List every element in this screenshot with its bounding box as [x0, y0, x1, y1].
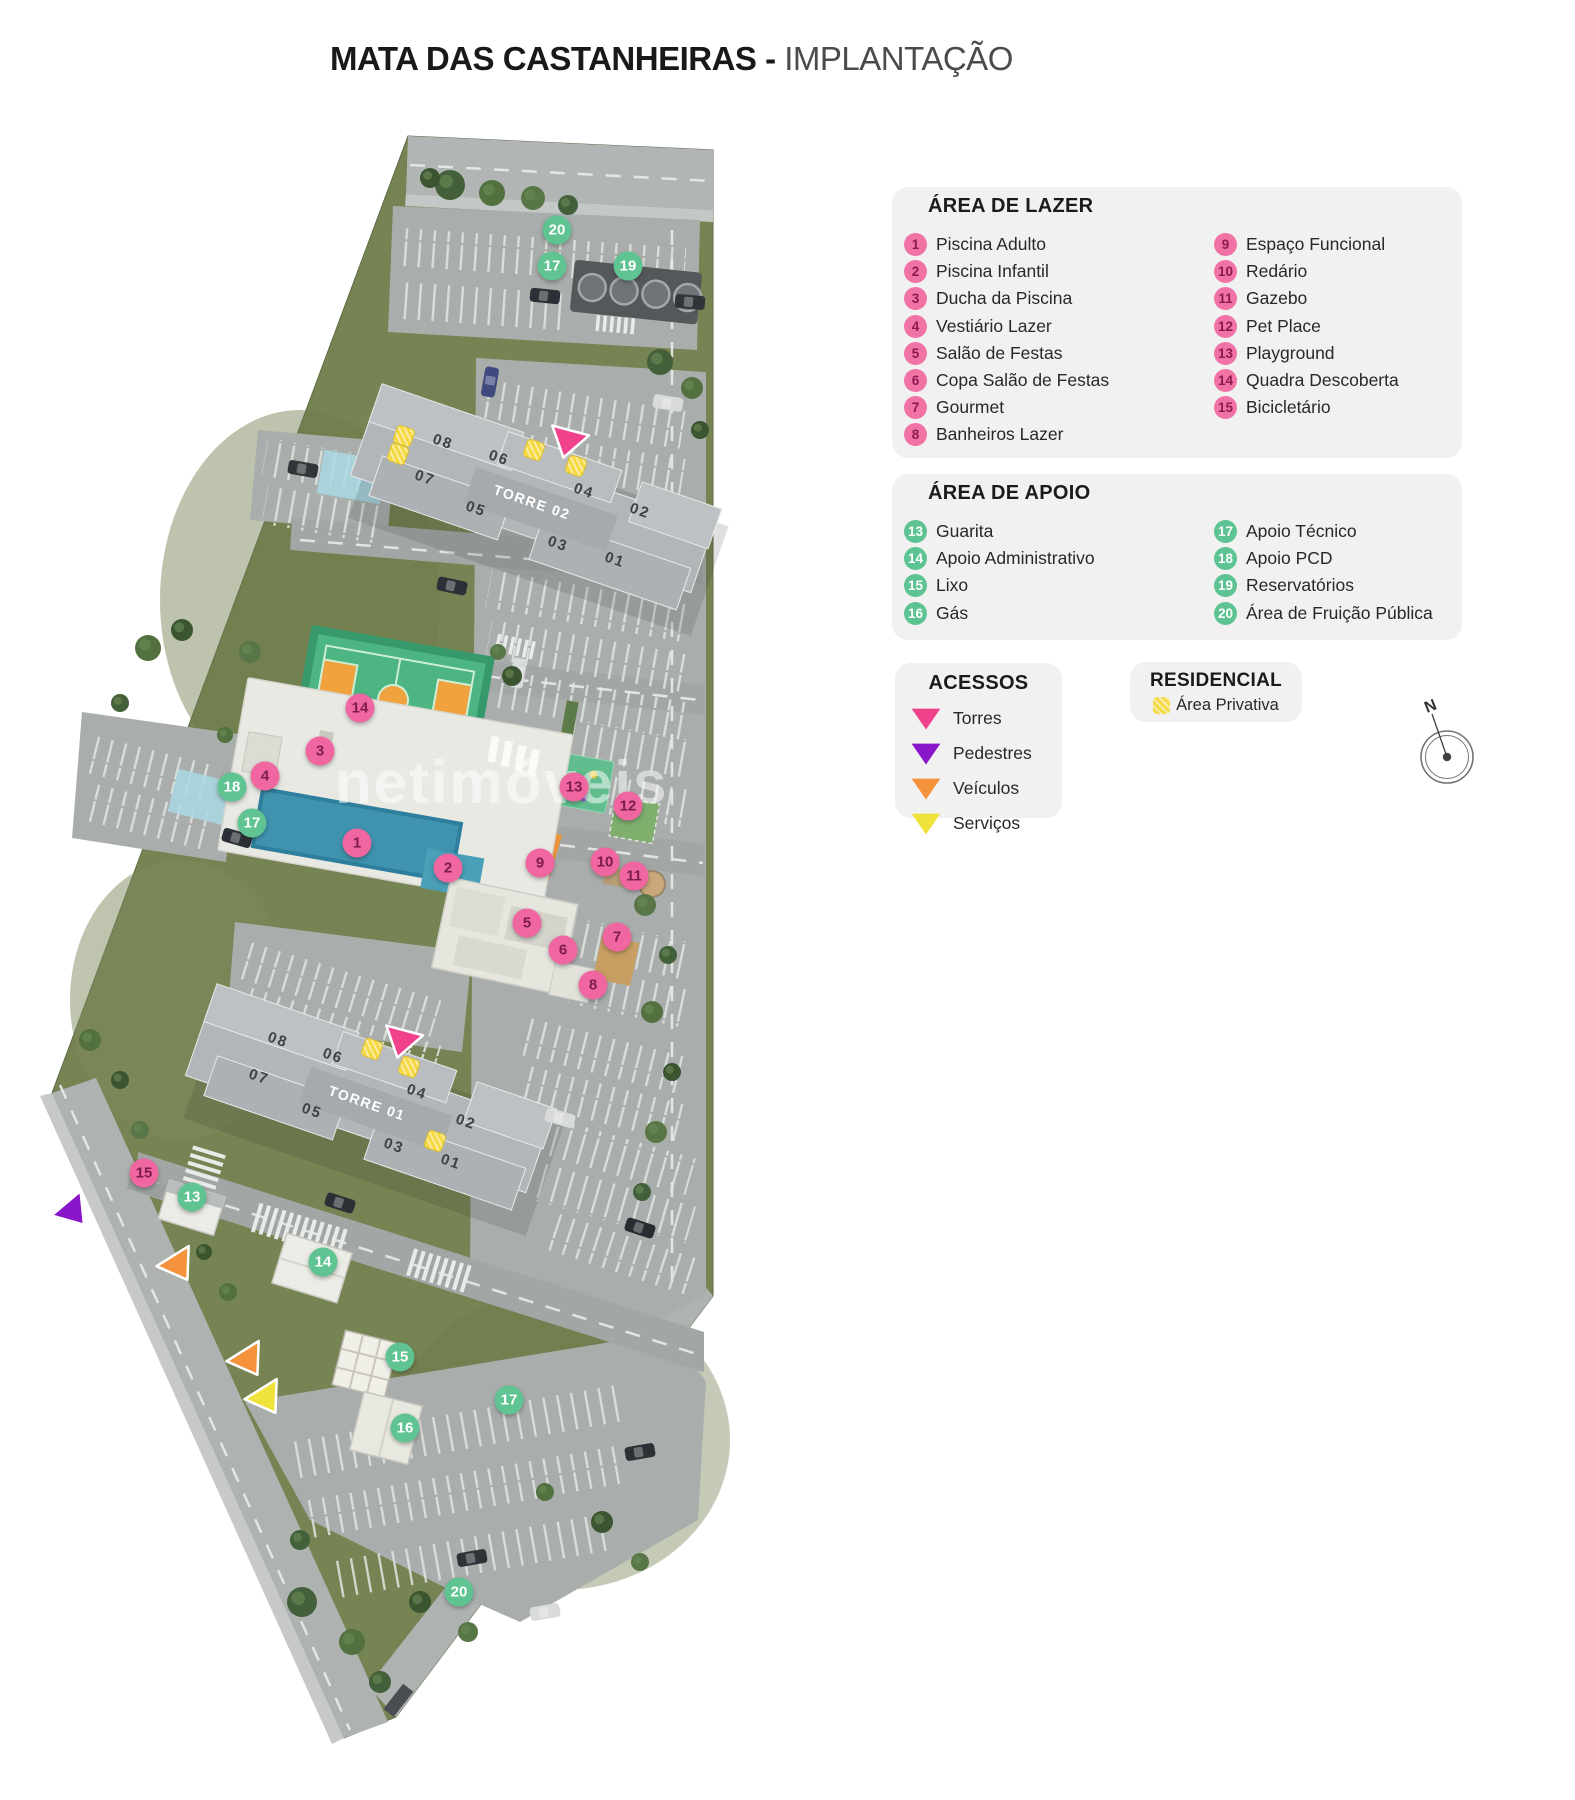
compass-north-label: N [1422, 697, 1439, 717]
legend-item-label: Copa Salão de Festas [936, 370, 1109, 391]
map-access-veiculos-triangle [150, 1240, 209, 1297]
legend-item: 12Pet Place [1214, 313, 1399, 340]
legend-item: 11Gazebo [1214, 285, 1399, 312]
map-marker-apoio-17: 17 [538, 252, 567, 281]
tower-unit-label: 04 [404, 1081, 429, 1104]
legend-item-label: Quadra Descoberta [1246, 370, 1399, 391]
legend-item: 3Ducha da Piscina [904, 285, 1214, 312]
map-marker-apoio-14: 14 [309, 1248, 338, 1277]
legend-item-label: Guarita [936, 521, 993, 542]
legend-item-label: Redário [1246, 261, 1307, 282]
legend-item-number: 9 [1214, 233, 1237, 256]
legend-item-number: 3 [904, 287, 927, 310]
legend-item: 20Área de Fruição Pública [1214, 600, 1433, 627]
map-marker-lazer-7: 7 [603, 923, 632, 952]
legend-item: Área Privativa [1130, 696, 1302, 715]
map-marker-apoio-17: 17 [495, 1386, 524, 1415]
legend-leisure-title: ÁREA DE LAZER [928, 195, 1093, 218]
legend-item: 10Redário [1214, 258, 1399, 285]
map-marker-lazer-6: 6 [549, 936, 578, 965]
legend-item-label: Banheiros Lazer [936, 424, 1063, 445]
map-marker-lazer-12: 12 [614, 792, 643, 821]
access-triangle-servicos [911, 813, 941, 835]
legend-residential-panel: RESIDENCIAL Área Privativa [1130, 662, 1302, 722]
legend-item-label: Piscina Infantil [936, 261, 1049, 282]
legend-item: Veículos [911, 771, 1062, 806]
legend-item-label: Playground [1246, 343, 1335, 364]
legend-item-number: 13 [1214, 342, 1237, 365]
legend-item-label: Pedestres [953, 743, 1032, 764]
map-marker-lazer-13: 13 [560, 773, 589, 802]
map-marker-lazer-1: 1 [343, 829, 372, 858]
legend-item-number: 5 [904, 342, 927, 365]
tower-unit-label: 07 [412, 467, 437, 490]
legend-item: 13Playground [1214, 340, 1399, 367]
legend-item-number: 8 [904, 423, 927, 446]
legend-item: 16Gás [904, 600, 1214, 627]
map-marker-apoio-18: 18 [218, 773, 247, 802]
legend-item-label: Área de Fruição Pública [1246, 603, 1433, 624]
legend-item: 14Quadra Descoberta [1214, 367, 1399, 394]
legend-item: 13Guarita [904, 518, 1214, 545]
tower-unit-label: 02 [627, 500, 652, 523]
map-marker-lazer-8: 8 [579, 971, 608, 1000]
legend-item-number: 15 [904, 574, 927, 597]
legend-item: 18Apoio PCD [1214, 545, 1433, 572]
title-separator: - [756, 40, 784, 77]
legend-item: 7Gourmet [904, 394, 1214, 421]
legend-item-label: Apoio Administrativo [936, 548, 1095, 569]
legend-item-number: 19 [1214, 574, 1237, 597]
map-marker-apoio-20: 20 [445, 1578, 474, 1607]
map-marker-apoio-16: 16 [391, 1414, 420, 1443]
legend-item: 14Apoio Administrativo [904, 545, 1214, 572]
legend-item: Serviços [911, 806, 1062, 841]
legend-item-label: Gás [936, 603, 968, 624]
map-marker-lazer-5: 5 [513, 909, 542, 938]
legend-access-panel: ACESSOS Torres Pedestres Veículos Serviç… [895, 663, 1062, 818]
legend-item-label: Apoio Técnico [1246, 521, 1357, 542]
legend-item: 5Salão de Festas [904, 340, 1214, 367]
map-marker-lazer-15: 15 [130, 1159, 159, 1188]
legend-residential-title: RESIDENCIAL [1130, 662, 1302, 692]
legend-item: 1Piscina Adulto [904, 231, 1214, 258]
legend-item: 19Reservatórios [1214, 572, 1433, 599]
legend-item-label: Área Privativa [1176, 696, 1279, 715]
legend-item-label: Gazebo [1246, 288, 1307, 309]
legend-item-label: Reservatórios [1246, 575, 1354, 596]
legend-support-title: ÁREA DE APOIO [928, 482, 1090, 505]
map-marker-lazer-2: 2 [434, 854, 463, 883]
tower-unit-label: 03 [545, 533, 570, 556]
tower-unit-label: 02 [453, 1111, 478, 1134]
tower-unit-label: 05 [299, 1100, 324, 1123]
legend-item-number: 1 [904, 233, 927, 256]
legend-item: 4Vestiário Lazer [904, 313, 1214, 340]
legend-item: Torres [911, 701, 1062, 736]
access-triangle-torres [911, 708, 941, 730]
legend-item-number: 12 [1214, 315, 1237, 338]
compass-icon: N [1387, 697, 1507, 817]
legend-item-label: Lixo [936, 575, 968, 596]
legend-item-number: 11 [1214, 287, 1237, 310]
title-main: MATA DAS CASTANHEIRAS [330, 40, 756, 77]
legend-item-number: 18 [1214, 547, 1237, 570]
legend-item: 15Bicicletário [1214, 394, 1399, 421]
legend-item-number: 14 [904, 547, 927, 570]
map-marker-lazer-10: 10 [591, 848, 620, 877]
legend-item-label: Apoio PCD [1246, 548, 1333, 569]
tower-unit-label: 03 [381, 1135, 406, 1158]
legend-item-label: Bicicletário [1246, 397, 1331, 418]
legend-item-number: 13 [904, 520, 927, 543]
access-triangle-veiculos [911, 778, 941, 800]
legend-item-number: 4 [904, 315, 927, 338]
legend-support-panel: ÁREA DE APOIO 13Guarita 14Apoio Administ… [892, 474, 1462, 640]
page: netimóveis 12345678910111213141520171918… [0, 0, 1575, 1800]
map-marker-apoio-13: 13 [178, 1183, 207, 1212]
map-marker-lazer-4: 4 [251, 762, 280, 791]
page-title: MATA DAS CASTANHEIRAS - IMPLANTAÇÃO [330, 40, 1010, 78]
map-marker-lazer-14: 14 [346, 694, 375, 723]
map-marker-lazer-11: 11 [620, 862, 649, 891]
legend-item-label: Torres [953, 708, 1002, 729]
map-marker-lazer-3: 3 [306, 737, 335, 766]
tower-name-label: TORRE 02 [491, 481, 572, 522]
private-area-swatch [1153, 697, 1170, 714]
legend-item-label: Gourmet [936, 397, 1004, 418]
tower-unit-label: 06 [320, 1045, 345, 1068]
map-marker-apoio-20: 20 [543, 216, 572, 245]
legend-access-title: ACESSOS [895, 663, 1062, 695]
legend-item: 15Lixo [904, 572, 1214, 599]
map-marker-apoio-17: 17 [238, 809, 267, 838]
legend-item-number: 7 [904, 396, 927, 419]
legend-item-label: Ducha da Piscina [936, 288, 1072, 309]
tower-name-label: TORRE 01 [326, 1082, 407, 1123]
legend-item: 6Copa Salão de Festas [904, 367, 1214, 394]
legend-leisure-panel: ÁREA DE LAZER 1Piscina Adulto 2Piscina I… [892, 187, 1462, 458]
legend-item-number: 10 [1214, 260, 1237, 283]
legend-item: 2Piscina Infantil [904, 258, 1214, 285]
legend-item-label: Vestiário Lazer [936, 316, 1052, 337]
tower-unit-label: 08 [430, 431, 455, 454]
legend-item-number: 20 [1214, 602, 1237, 625]
private-area-square [522, 438, 546, 462]
legend-item: 8Banheiros Lazer [904, 421, 1214, 448]
legend-item-number: 14 [1214, 369, 1237, 392]
legend-item-label: Pet Place [1246, 316, 1321, 337]
legend-item-label: Espaço Funcional [1246, 234, 1385, 255]
tower-unit-label: 07 [246, 1066, 271, 1089]
tower-unit-label: 05 [463, 498, 488, 521]
tower-unit-label: 06 [486, 447, 511, 470]
legend-item-label: Salão de Festas [936, 343, 1062, 364]
legend-item: 9Espaço Funcional [1214, 231, 1399, 258]
legend-item-number: 16 [904, 602, 927, 625]
legend-item-number: 6 [904, 369, 927, 392]
legend-item-label: Serviços [953, 813, 1020, 834]
map-access-pedestres-triangle [45, 1185, 105, 1244]
legend-item-label: Veículos [953, 778, 1019, 799]
tower-unit-label: 01 [438, 1151, 463, 1174]
legend-item-number: 2 [904, 260, 927, 283]
tower-unit-label: 04 [571, 480, 596, 503]
legend-item-number: 17 [1214, 520, 1237, 543]
legend-item: Pedestres [911, 736, 1062, 771]
legend-item-label: Piscina Adulto [936, 234, 1046, 255]
map-marker-apoio-15: 15 [386, 1343, 415, 1372]
map-marker-apoio-19: 19 [614, 252, 643, 281]
legend-item: 17Apoio Técnico [1214, 518, 1433, 545]
tower-unit-label: 08 [265, 1029, 290, 1052]
title-subtitle: IMPLANTAÇÃO [784, 40, 1013, 77]
map-marker-lazer-9: 9 [526, 849, 555, 878]
access-triangle-pedestres [911, 743, 941, 765]
legend-item-number: 15 [1214, 396, 1237, 419]
tower-unit-label: 01 [602, 549, 627, 572]
